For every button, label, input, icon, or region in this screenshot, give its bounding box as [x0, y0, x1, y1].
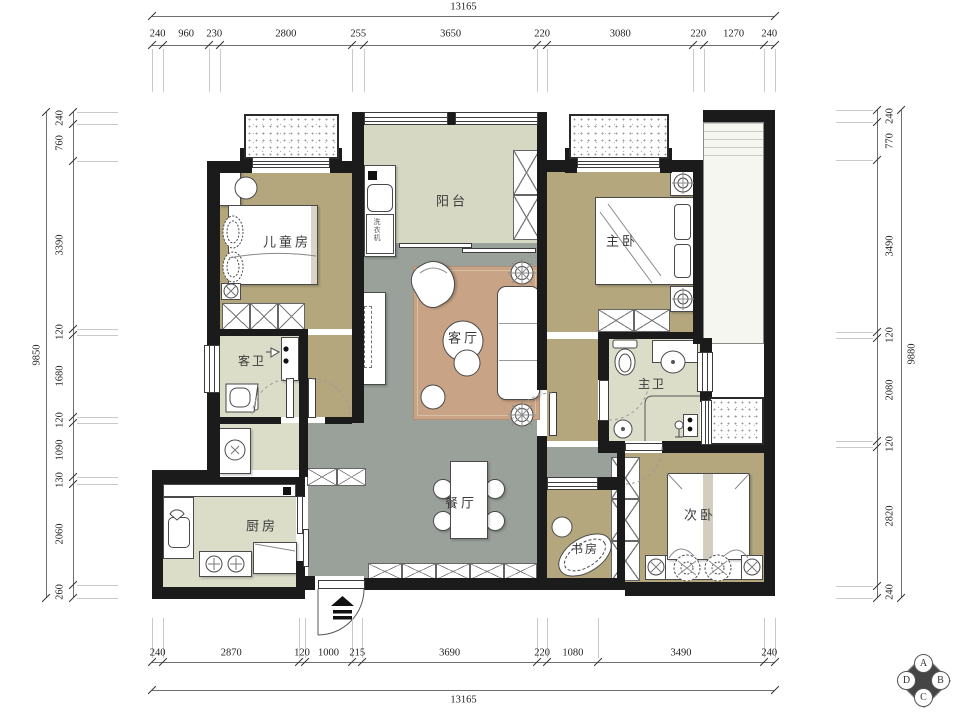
- room-label-study: 书房: [571, 543, 599, 555]
- entry-arrow-icon: [331, 596, 354, 620]
- dim-label: 130: [55, 472, 66, 488]
- dim-mark: [73, 112, 74, 598]
- dim-label: 2060: [55, 524, 66, 545]
- dim-label: 3690: [439, 648, 460, 659]
- dim-mark: [352, 49, 353, 92]
- floor-plan-canvas: 洗衣机: [0, 0, 961, 721]
- dim-mark: [77, 161, 118, 162]
- dim-mark: [77, 585, 118, 586]
- toilet-master: [615, 349, 635, 375]
- nightstand-lamp: [672, 172, 694, 194]
- dim-mark: [364, 49, 365, 92]
- logo-letter-d: D: [897, 671, 916, 690]
- dim-label: 255: [350, 29, 366, 40]
- dim-mark: [704, 49, 705, 92]
- dim-mark: [877, 110, 878, 597]
- dim-mark: [764, 49, 765, 92]
- dim-mark: [77, 335, 118, 336]
- stool: [421, 385, 445, 409]
- dim-mark: [220, 49, 221, 92]
- dim-label: 13165: [450, 2, 476, 13]
- dim-mark: [152, 45, 775, 46]
- door-arc-second: [625, 447, 662, 484]
- dim-label: 3490: [885, 236, 896, 257]
- dim-label: 240: [55, 110, 66, 126]
- dim-mark: [77, 477, 118, 478]
- dim-mark: [152, 16, 775, 17]
- dim-mark: [77, 112, 118, 113]
- dim-label: 3390: [55, 234, 66, 255]
- desk-chair: [235, 177, 257, 199]
- dim-label: 215: [349, 648, 365, 659]
- dim-label: 240: [885, 584, 896, 600]
- room-label-guest-bath: 客卫: [238, 355, 266, 367]
- dim-label: 3080: [610, 29, 631, 40]
- dim-label: 2870: [221, 648, 242, 659]
- room-label-second: 次卧: [684, 510, 716, 523]
- dim-mark: [836, 586, 873, 587]
- dim-label: 220: [534, 29, 550, 40]
- dim-mark: [836, 598, 873, 599]
- dim-label: 2820: [885, 506, 896, 527]
- dim-label: 2800: [275, 29, 296, 40]
- pouf-flower: [705, 555, 731, 581]
- dim-label: 240: [150, 29, 166, 40]
- dim-mark: [836, 441, 873, 442]
- dim-mark: [836, 122, 873, 123]
- dim-mark: [836, 447, 873, 448]
- compass-logo: A B C D: [891, 648, 955, 712]
- dim-label: 2080: [885, 379, 896, 400]
- room-label-master: 主卧: [606, 236, 638, 249]
- toilet-tank: [613, 340, 637, 348]
- dim-label: 120: [294, 648, 310, 659]
- study-chair: [552, 517, 572, 537]
- dim-label: 220: [534, 648, 550, 659]
- plant-pot: [508, 401, 536, 429]
- dim-mark: [537, 49, 538, 92]
- dim-label: 760: [55, 135, 66, 151]
- dim-label: 230: [206, 29, 222, 40]
- door-arcs: [252, 379, 662, 484]
- room-label-balcony: 阳台: [436, 196, 468, 209]
- dim-label: 9880: [907, 344, 918, 365]
- room-label-living: 客厅: [448, 333, 480, 346]
- plant-pot: [508, 259, 536, 287]
- furniture-detail-layer: [0, 0, 961, 721]
- dim-label: 1270: [723, 29, 744, 40]
- room-label-dining: 餐厅: [445, 498, 477, 511]
- pouf-flower: [674, 555, 700, 581]
- dim-mark: [836, 332, 873, 333]
- dim-mark: [163, 49, 164, 92]
- dim-label: 13165: [450, 695, 476, 706]
- dim-label: 960: [178, 29, 194, 40]
- logo-letter-b: B: [931, 671, 950, 690]
- dim-mark: [77, 417, 118, 418]
- dim-mark: [152, 662, 775, 663]
- dim-label: 240: [150, 648, 166, 659]
- dim-label: 240: [761, 29, 777, 40]
- room-label-children: 儿童房: [263, 237, 311, 250]
- dim-label: 220: [690, 29, 706, 40]
- dim-label: 120: [885, 327, 896, 343]
- faucet-icon: [266, 348, 279, 357]
- dim-label: 120: [55, 413, 66, 429]
- dim-label: 1680: [55, 365, 66, 386]
- dim-mark: [77, 124, 118, 125]
- dim-mark: [836, 110, 873, 111]
- logo-letter-a: A: [914, 654, 933, 673]
- dim-mark: [46, 112, 47, 598]
- dim-mark: [152, 690, 775, 691]
- door-arc-children: [312, 379, 350, 417]
- room-label-master-bath: 主卫: [638, 378, 666, 390]
- dim-label: 260: [55, 584, 66, 600]
- dim-label: 3650: [440, 29, 461, 40]
- dim-mark: [598, 618, 599, 658]
- dim-mark: [693, 49, 694, 92]
- dim-label: 1090: [55, 440, 66, 461]
- logo-letter-c: C: [914, 688, 933, 707]
- dim-label: 3490: [671, 648, 692, 659]
- dim-label: 1000: [318, 648, 339, 659]
- kitchen-faucet: [170, 510, 184, 520]
- dim-mark: [836, 160, 873, 161]
- room-label-kitchen: 厨房: [246, 521, 278, 534]
- dim-mark: [77, 598, 118, 599]
- dim-label: 240: [761, 648, 777, 659]
- entry-door: [318, 589, 364, 635]
- dim-label: 1080: [562, 648, 583, 659]
- dim-mark: [547, 49, 548, 92]
- dim-mark: [152, 49, 153, 92]
- dim-mark: [901, 110, 902, 597]
- dim-label: 240: [885, 108, 896, 124]
- dim-label: 770: [885, 133, 896, 149]
- dim-label: 120: [885, 436, 896, 452]
- dim-mark: [77, 423, 118, 424]
- coffee-table-small: [454, 350, 480, 376]
- nightstand-lamp: [672, 288, 694, 310]
- dim-label: 120: [55, 324, 66, 340]
- dim-mark: [836, 338, 873, 339]
- dim-mark: [775, 49, 776, 92]
- dim-mark: [209, 49, 210, 92]
- dim-mark: [77, 484, 118, 485]
- floor-drain: [675, 421, 683, 437]
- dim-label: 9850: [32, 344, 43, 365]
- dim-mark: [77, 329, 118, 330]
